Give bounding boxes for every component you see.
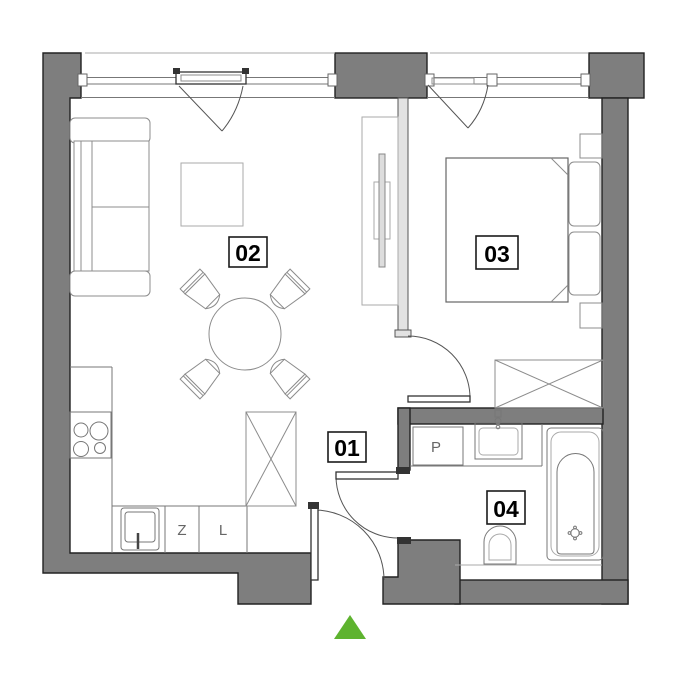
burner	[74, 423, 88, 437]
chair	[265, 354, 310, 399]
balcony-door-frame	[176, 72, 246, 84]
bed	[446, 158, 600, 302]
wall-bathroom-west	[398, 408, 410, 470]
room-label-01: 01	[328, 432, 366, 462]
chair	[180, 354, 225, 399]
bedroom	[446, 134, 603, 408]
nightstand-bottom	[580, 303, 602, 328]
hall-wardrobe	[246, 412, 296, 506]
bedroom-casement-bar	[432, 78, 474, 84]
pillow	[569, 232, 600, 295]
coffee-table	[181, 163, 243, 226]
partition-wall	[395, 98, 411, 337]
sink-basin	[479, 428, 518, 455]
burner	[95, 443, 106, 454]
sink-basin	[125, 512, 155, 542]
burner	[74, 442, 89, 457]
bedroom-door-leaf	[408, 396, 470, 402]
bedroom-door-swing	[408, 336, 470, 398]
bedroom-door	[408, 336, 470, 402]
balcony-door-swing	[179, 86, 243, 131]
cabinet-l-label: L	[219, 522, 227, 539]
toilet-inner	[489, 534, 511, 560]
wall-right	[602, 98, 628, 604]
sink-outer	[121, 508, 159, 550]
balcony-door-hinge	[242, 68, 249, 74]
pillow	[569, 162, 600, 226]
tv-unit	[362, 117, 398, 305]
dining-table	[209, 298, 281, 370]
bed-mattress	[446, 158, 568, 302]
stove	[70, 412, 111, 458]
sofa-seat-1	[92, 141, 149, 207]
sofa-armrest-bottom	[70, 271, 150, 296]
chair	[265, 269, 310, 314]
room-label-02: 02	[229, 237, 267, 267]
entrance-door-leaf	[311, 508, 318, 580]
tub-drain	[568, 526, 582, 540]
window-notch	[78, 74, 87, 86]
floor-plan-svg: Z L P	[0, 0, 688, 691]
sofa	[70, 118, 150, 296]
entrance-door-swing	[314, 510, 384, 580]
balcony-door	[173, 68, 249, 131]
kitchen-sink	[121, 508, 159, 550]
bedroom-wardrobe	[495, 360, 603, 408]
wall-top-pier	[335, 53, 427, 98]
balcony-door-hinge	[173, 68, 180, 74]
room-number: 03	[484, 241, 510, 267]
entrance-arrow-icon	[334, 615, 366, 639]
room-label-04: 04	[487, 491, 525, 524]
bedroom-casement-swing	[428, 85, 488, 128]
bathroom-door	[336, 467, 410, 538]
bathtub	[547, 428, 603, 560]
window-notch	[581, 74, 590, 86]
window-notch	[487, 74, 497, 86]
room-label-03: 03	[476, 236, 518, 269]
wardrobe-cross	[246, 412, 296, 506]
washer-label: P	[431, 439, 441, 456]
windows	[78, 53, 590, 131]
window-notch	[328, 74, 337, 86]
sofa-backrest	[74, 141, 92, 271]
entrance-door	[308, 502, 411, 580]
sofa-armrest-top	[70, 118, 150, 143]
toilet	[484, 526, 516, 564]
sofa-seat-2	[92, 207, 149, 271]
door-jamb	[397, 537, 411, 544]
room-number: 04	[493, 496, 519, 522]
room-number: 01	[334, 435, 360, 461]
door-jamb	[308, 502, 319, 509]
bathroom-door-leaf	[336, 472, 398, 479]
dining-chairs	[180, 269, 310, 399]
wall-bathroom-bottom	[455, 580, 628, 604]
cabinet-z-label: Z	[177, 522, 186, 539]
wall-top-right	[589, 53, 644, 98]
burner	[90, 422, 108, 440]
nightstand-top	[580, 134, 602, 158]
wardrobe-cross	[495, 360, 603, 408]
partition-02-03	[398, 98, 408, 330]
room-number: 02	[235, 240, 261, 266]
bathroom-door-swing	[336, 476, 398, 538]
door-jamb	[396, 467, 410, 474]
floor-plan: Z L P	[0, 0, 688, 691]
kitchen: Z L	[70, 367, 296, 553]
tub-basin	[557, 454, 594, 555]
washing-machine: P	[413, 427, 463, 465]
bedroom-casement	[428, 78, 488, 128]
wall-entrance-right	[383, 540, 460, 604]
chair	[180, 269, 225, 314]
tv-screen	[379, 154, 385, 267]
